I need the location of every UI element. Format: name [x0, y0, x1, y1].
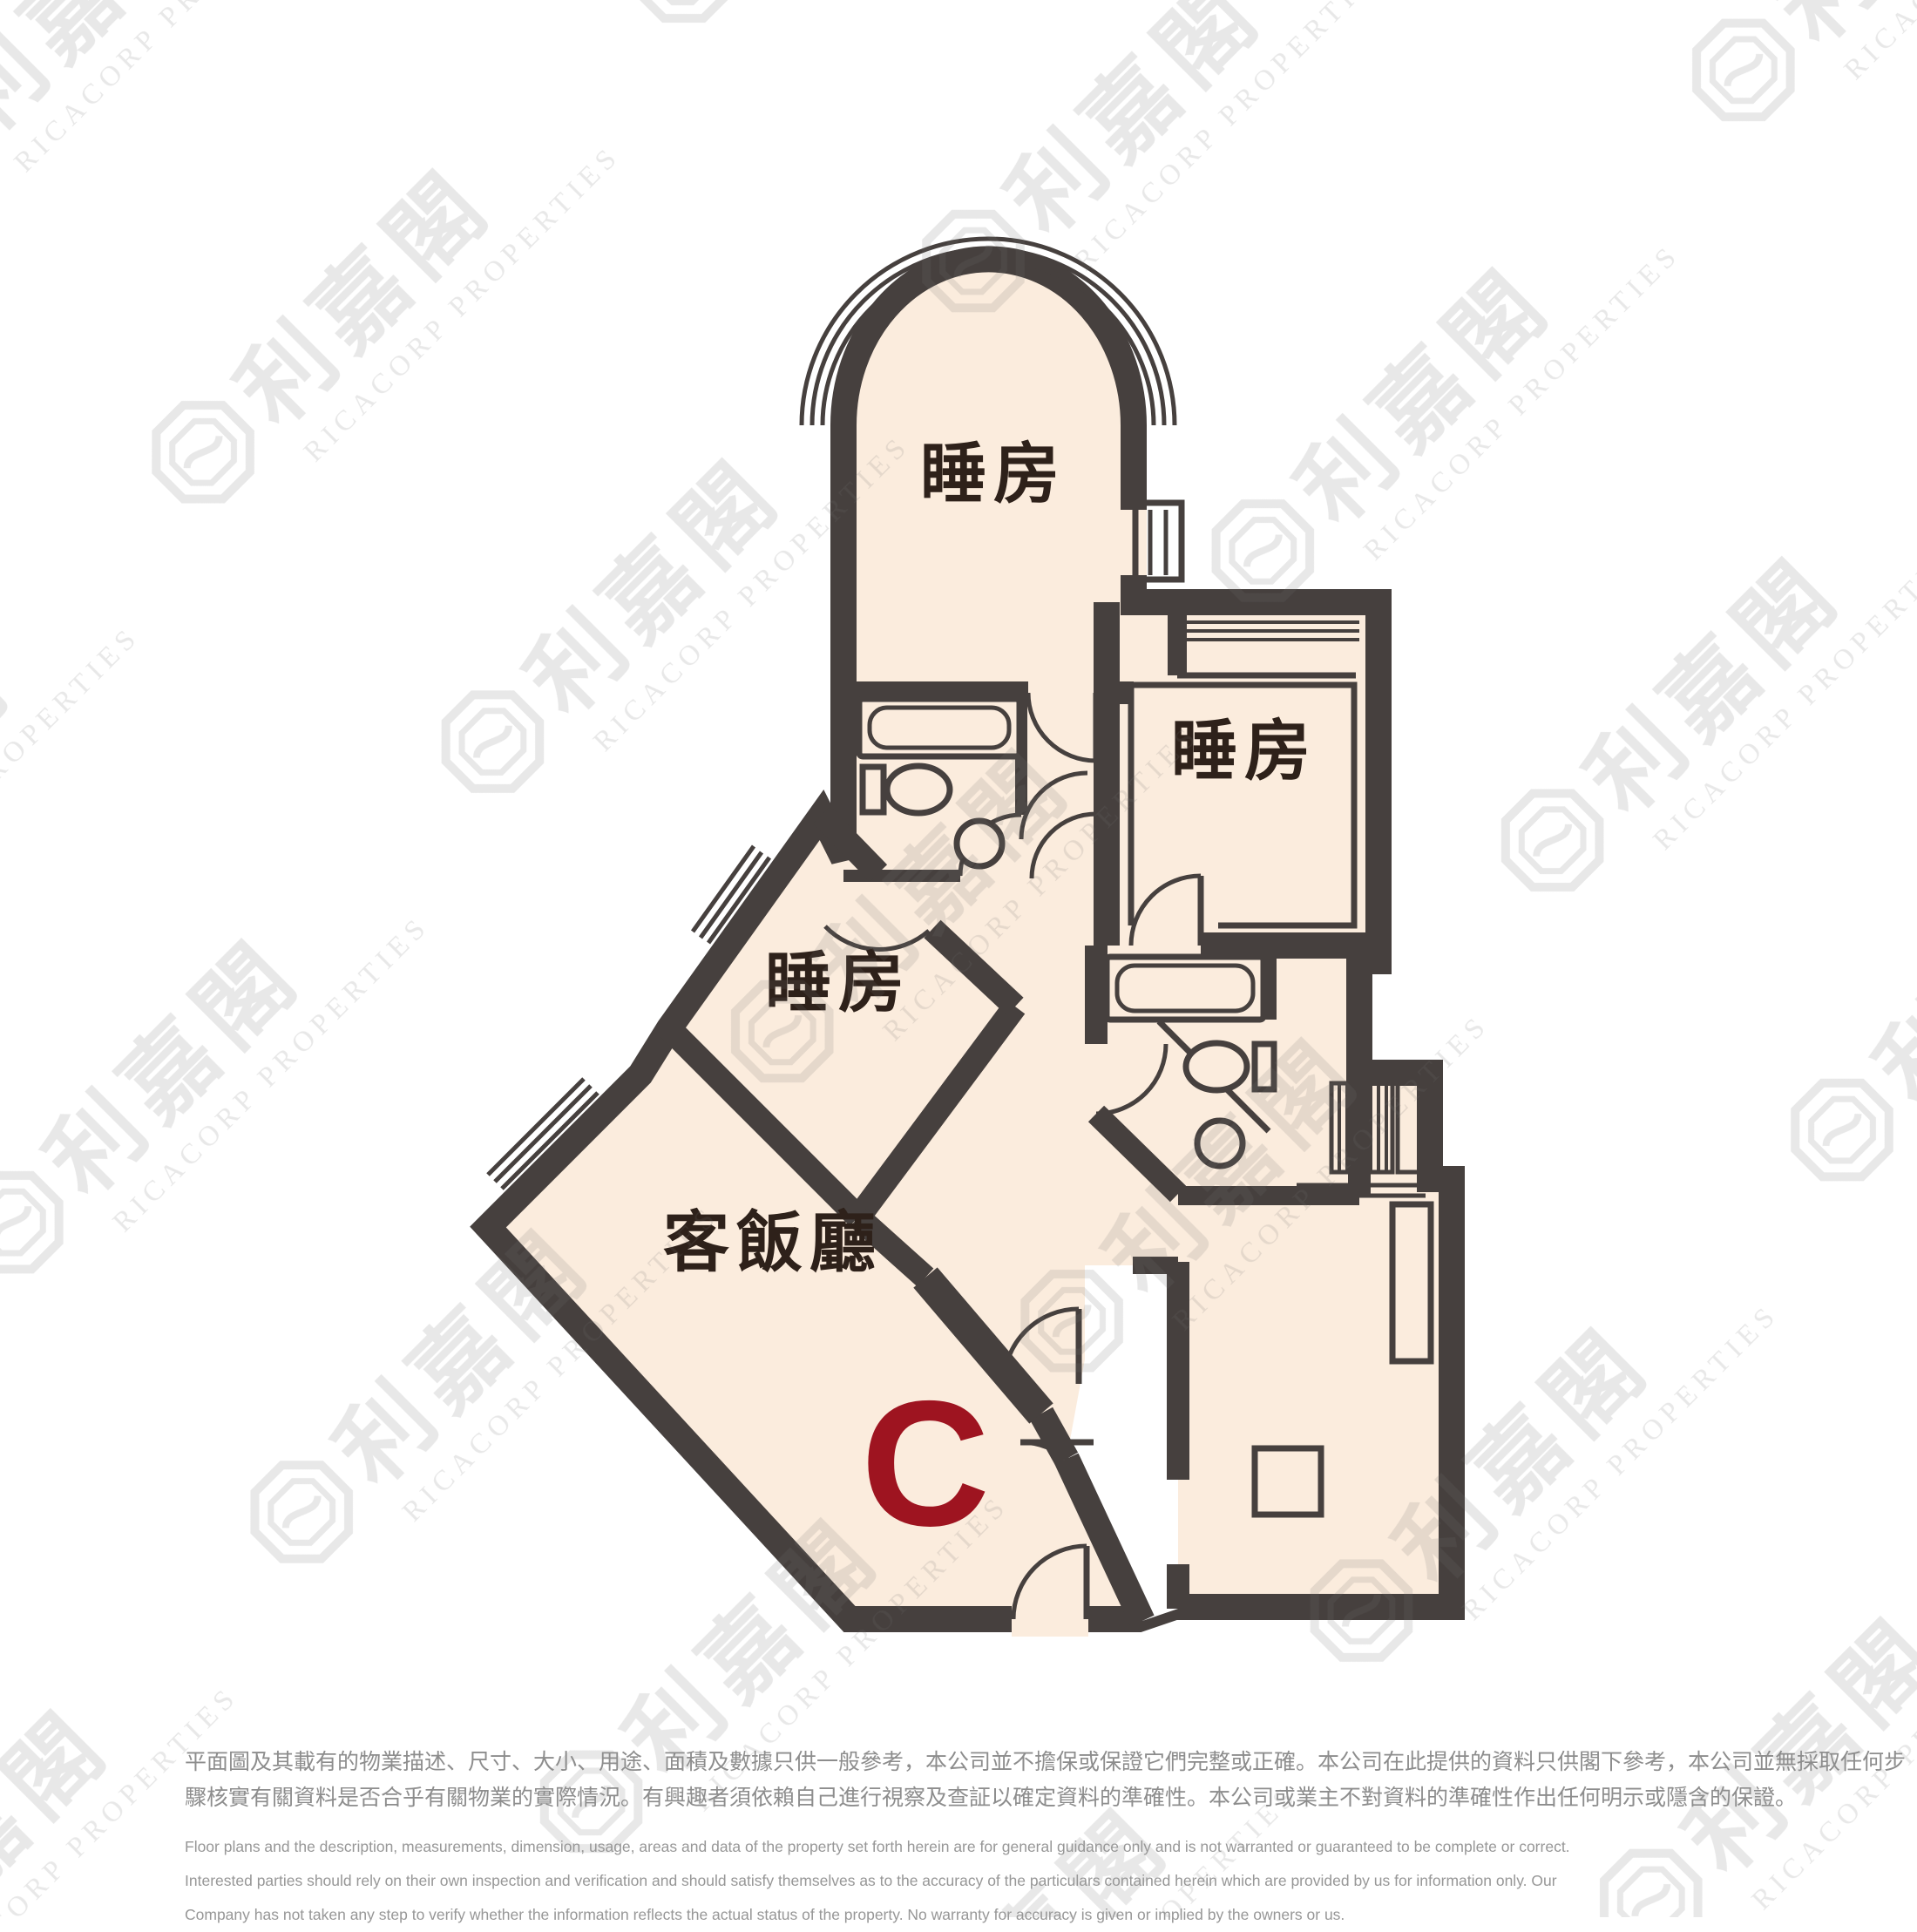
window-glazing-lines	[1150, 510, 1166, 575]
sink2-icon	[1197, 1121, 1243, 1166]
floor-plan: 睡房 睡房 睡房 客飯廳 C	[0, 0, 1917, 1917]
bedroom1-label: 睡房	[920, 437, 1067, 512]
unit-letter: C	[861, 1364, 990, 1563]
bedroom3-label: 睡房	[765, 946, 911, 1020]
living-dining-label: 客飯廳	[663, 1206, 883, 1280]
ac-louvre-lines	[1339, 1083, 1386, 1172]
sink-icon	[957, 821, 1002, 866]
toilet2-icon	[1186, 1043, 1247, 1090]
toilet-icon	[887, 766, 950, 813]
kitchen-appliance	[1255, 1448, 1321, 1515]
toilet-tank-icon	[863, 767, 884, 812]
toilet2-tank-icon	[1255, 1044, 1274, 1089]
entrance-gap	[1012, 1603, 1088, 1637]
bedroom2-label: 睡房	[1171, 715, 1318, 789]
